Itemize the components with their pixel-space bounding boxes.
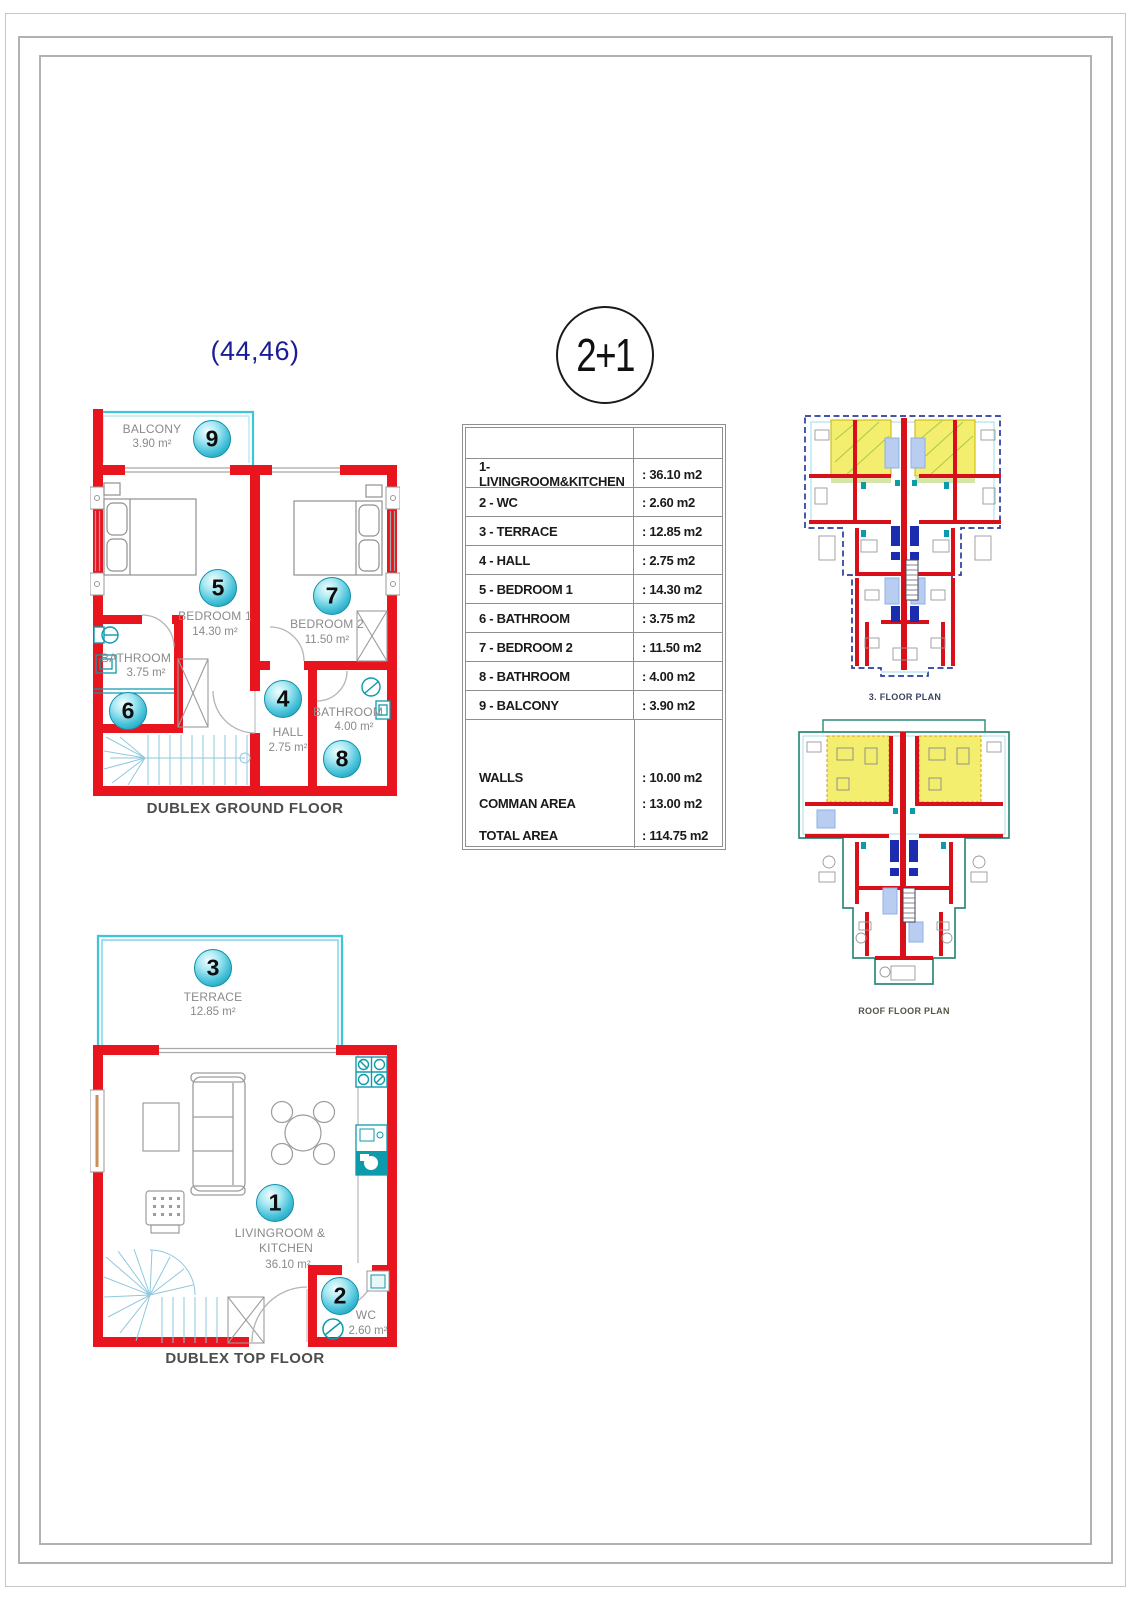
sofa-icon xyxy=(191,1073,245,1195)
room-area-cell: : 36.10 m2 xyxy=(634,459,722,489)
summary-label-cell: TOTAL AREA xyxy=(466,822,634,848)
dining-table-icon xyxy=(272,1102,335,1165)
coffee-table-icon xyxy=(143,1103,179,1151)
area-table: 1- LIVINGROOM&KITCHEN : 36.10 m2 2 - WC … xyxy=(462,424,726,850)
armchair-icon xyxy=(146,1191,184,1233)
room-number-marker: 8 xyxy=(324,741,361,778)
svg-text:BALCONY: BALCONY xyxy=(123,422,182,436)
room-area-cell: : 3.75 m2 xyxy=(634,604,722,632)
svg-text:36.10 m²: 36.10 m² xyxy=(265,1259,311,1271)
sink-icon xyxy=(367,1271,389,1291)
room-number-marker: 2 xyxy=(322,1278,359,1315)
room-area-cell: : 14.30 m2 xyxy=(634,575,722,603)
svg-text:5: 5 xyxy=(212,575,225,601)
svg-text:TERRACE: TERRACE xyxy=(184,990,243,1004)
svg-text:1: 1 xyxy=(269,1190,282,1216)
area-table-row: 4 - HALL : 2.75 m2 xyxy=(466,546,722,575)
room-area-cell: : 2.75 m2 xyxy=(634,546,722,574)
room-number-marker: 5 xyxy=(200,570,237,607)
svg-text:12.85 m²: 12.85 m² xyxy=(190,1006,236,1018)
apartment-type-badge: 2+1 xyxy=(556,306,654,404)
area-table-summary: WALLS : 10.00 m2 COMMAN AREA : 13.00 m2 … xyxy=(466,720,722,848)
room-label-cell: 7 - BEDROOM 2 xyxy=(466,633,634,661)
summary-label-cell: COMMAN AREA xyxy=(466,790,634,816)
toilet-icon xyxy=(323,1319,343,1339)
room-label-cell: 5 - BEDROOM 1 xyxy=(466,575,634,603)
stair-stripes xyxy=(906,560,918,600)
curtain-line xyxy=(90,1090,104,1172)
shower-icon xyxy=(362,678,380,696)
svg-text:KITCHEN: KITCHEN xyxy=(259,1241,313,1255)
wardrobe-icon xyxy=(228,1297,264,1343)
floor3-key-plan-drawing xyxy=(795,410,1015,682)
svg-text:LIVINGROOM &: LIVINGROOM & xyxy=(235,1226,325,1240)
svg-text:BEDROOM 1: BEDROOM 1 xyxy=(178,609,252,623)
svg-text:2: 2 xyxy=(334,1283,347,1309)
room-area-cell: : 2.60 m2 xyxy=(634,488,722,516)
bed-icon xyxy=(294,485,382,575)
apartment-type-text: 2+1 xyxy=(576,328,634,382)
summary-label-cell: WALLS xyxy=(466,764,634,790)
svg-text:BEDROOM 2: BEDROOM 2 xyxy=(290,617,364,631)
svg-text:2.60 m²: 2.60 m² xyxy=(349,1325,388,1337)
summary-value-cell: : 114.75 m2 xyxy=(634,822,722,848)
svg-text:14.30 m²: 14.30 m² xyxy=(192,626,238,638)
ground-floor-title: DUBLEX GROUND FLOOR xyxy=(75,800,415,817)
room-area-cell: : 11.50 m2 xyxy=(634,633,722,661)
svg-text:11.50 m²: 11.50 m² xyxy=(305,634,350,646)
svg-text:9: 9 xyxy=(206,426,219,452)
room-label-cell: 8 - BATHROOM xyxy=(466,662,634,690)
area-table-row: 5 - BEDROOM 1 : 14.30 m2 xyxy=(466,575,722,604)
room-label-cell: 2 - WC xyxy=(466,488,634,516)
roof-key-plan-drawing xyxy=(793,712,1015,998)
sink-icon xyxy=(356,1125,387,1175)
area-table-row: 8 - BATHROOM : 4.00 m2 xyxy=(466,662,722,691)
shower-lines xyxy=(94,689,174,693)
room-area-cell: : 12.85 m2 xyxy=(634,517,722,545)
summary-row: WALLS : 10.00 m2 xyxy=(466,764,722,790)
roof-strip xyxy=(823,720,985,732)
column-divider xyxy=(634,720,635,848)
room-number-marker: 7 xyxy=(314,578,351,615)
floor-plan-sheet: (44,46) 2+1 xyxy=(0,0,1131,1600)
room-label-cell: 1- LIVINGROOM&KITCHEN xyxy=(466,459,634,489)
floor3-plan-title: 3. FLOOR PLAN xyxy=(795,692,1015,702)
svg-text:BATHROOM: BATHROOM xyxy=(101,651,171,665)
svg-text:3: 3 xyxy=(207,955,220,981)
room-area-cell: : 3.90 m2 xyxy=(634,691,722,719)
bed-icon xyxy=(104,483,196,575)
svg-text:3.90 m²: 3.90 m² xyxy=(133,438,172,450)
area-table-row: 3 - TERRACE : 12.85 m2 xyxy=(466,517,722,546)
room-label-cell: 6 - BATHROOM xyxy=(466,604,634,632)
room-label-cell: 3 - TERRACE xyxy=(466,517,634,545)
stairs-icon xyxy=(104,735,250,785)
svg-text:BATHROOM: BATHROOM xyxy=(313,705,383,719)
room-label-cell: 9 - BALCONY xyxy=(466,691,634,719)
room-number-marker: 4 xyxy=(265,681,302,718)
roof-plan-title: ROOF FLOOR PLAN xyxy=(793,1006,1015,1016)
area-table-row: 9 - BALCONY : 3.90 m2 xyxy=(466,691,722,720)
top-floor-plan-drawing: 3 1 2 TERRACE 12.85 m² LIVINGROOM & KITC… xyxy=(90,905,400,1355)
core-elements xyxy=(817,808,946,942)
area-table-row: 6 - BATHROOM : 3.75 m2 xyxy=(466,604,722,633)
area-table-row: 2 - WC : 2.60 m2 xyxy=(466,488,722,517)
svg-text:2.75 m²: 2.75 m² xyxy=(269,742,308,754)
summary-value-cell: : 13.00 m2 xyxy=(634,790,722,816)
window-lines xyxy=(159,1049,336,1053)
summary-value-cell: : 10.00 m2 xyxy=(634,764,722,790)
svg-text:6: 6 xyxy=(122,698,135,724)
top-floor-title: DUBLEX TOP FLOOR xyxy=(75,1350,415,1367)
ground-floor-plan-drawing: 9 5 7 6 4 8 BALCONY 3.90 m² BEDROOM 1 14… xyxy=(90,403,400,803)
stair-stripes xyxy=(903,888,915,922)
stove-icon xyxy=(356,1057,387,1087)
toilet-icon xyxy=(94,627,118,643)
room-number-marker: 9 xyxy=(194,421,231,458)
summary-row: TOTAL AREA : 114.75 m2 xyxy=(466,822,722,848)
svg-text:3.75 m²: 3.75 m² xyxy=(127,667,166,679)
spiral-stairs-icon xyxy=(104,1249,217,1343)
svg-text:8: 8 xyxy=(336,746,349,772)
room-number-marker: 3 xyxy=(195,950,232,987)
svg-text:4.00 m²: 4.00 m² xyxy=(335,721,374,733)
svg-text:HALL: HALL xyxy=(273,725,304,739)
room-label-cell: 4 - HALL xyxy=(466,546,634,574)
room-number-marker: 1 xyxy=(257,1185,294,1222)
area-table-grid: 1- LIVINGROOM&KITCHEN : 36.10 m2 2 - WC … xyxy=(465,427,723,847)
area-table-row: 7 - BEDROOM 2 : 11.50 m2 xyxy=(466,633,722,662)
summary-row: COMMAN AREA : 13.00 m2 xyxy=(466,790,722,816)
area-table-row: 1- LIVINGROOM&KITCHEN : 36.10 m2 xyxy=(466,459,722,488)
svg-text:7: 7 xyxy=(326,583,339,609)
room-area-cell: : 4.00 m2 xyxy=(634,662,722,690)
svg-text:WC: WC xyxy=(356,1308,377,1322)
unit-numbers-label: (44,46) xyxy=(160,336,350,367)
room-number-marker: 6 xyxy=(110,693,147,730)
svg-text:4: 4 xyxy=(277,686,290,712)
area-table-header-row xyxy=(466,428,722,459)
